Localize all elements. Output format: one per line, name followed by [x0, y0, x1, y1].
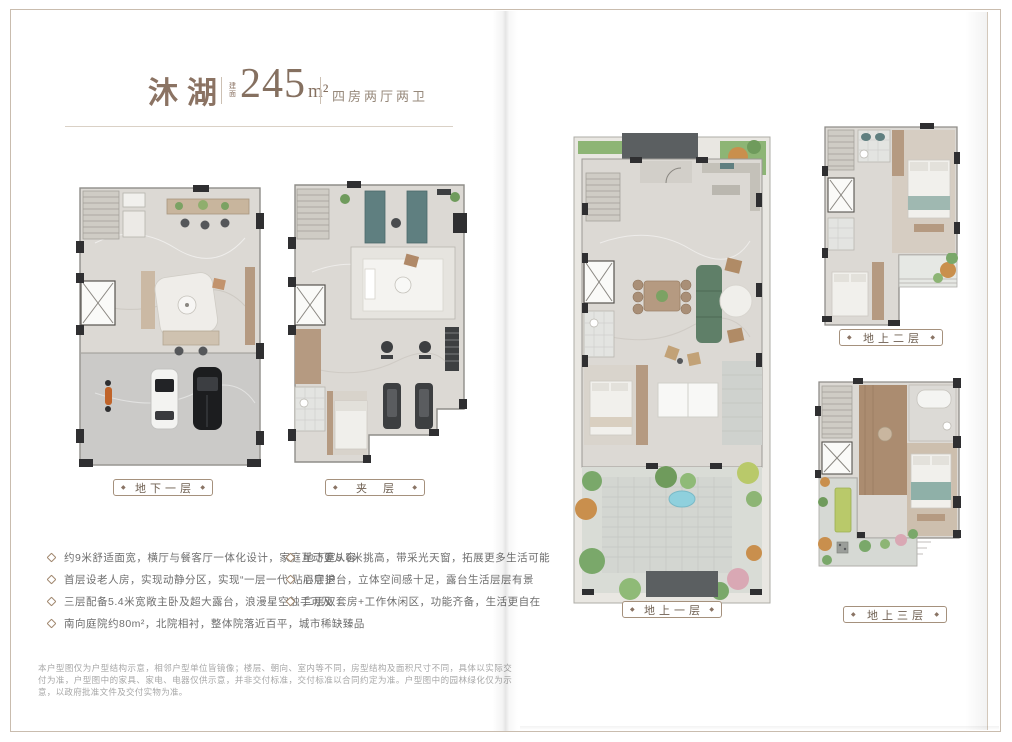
feature-item: 地下室5.6米挑高，带采光天窗，拓展更多生活可能	[287, 552, 497, 564]
title-divider-2	[320, 77, 321, 104]
layout-spec: 四房两厅两卫	[332, 86, 428, 105]
page-edge-line	[987, 12, 988, 730]
feature-item: 首层设老人房，实现动静分区，实现“一层一代”贴心守护	[48, 574, 298, 586]
area-value: 245	[240, 63, 306, 105]
diamond-icon: ◆	[851, 612, 856, 618]
area-figure: 245 m²	[240, 63, 328, 105]
feature-item: 三层配备5.4米宽敞主卧及超大露台，浪漫星空触手可及	[48, 596, 298, 608]
diamond-bullet-icon	[286, 597, 296, 607]
diamond-icon: ◆	[930, 335, 935, 341]
feature-item: 约9米舒适面宽，横厅与餐客厅一体化设计，家庭互动更从容	[48, 552, 298, 564]
floorplan-floor2	[820, 122, 964, 330]
diamond-icon: ◆	[709, 607, 714, 613]
diamond-bullet-icon	[286, 575, 296, 585]
floorplan-mezzanine	[287, 177, 472, 470]
header-rule	[65, 126, 453, 127]
floorplan-floor2-svg	[820, 122, 964, 330]
feature-list-left: 约9米舒适面宽，横厅与餐客厅一体化设计，家庭互动更从容 首层设老人房，实现动静分…	[48, 552, 298, 640]
floorplan-floor3-svg	[813, 376, 965, 604]
diamond-bullet-icon	[47, 553, 57, 563]
plan-label-floor3: ◆ 地上三层 ◆	[843, 606, 947, 623]
diamond-bullet-icon	[286, 553, 296, 563]
brochure-page: { "header": { "title": "沐湖", "area_label…	[0, 0, 1012, 742]
diamond-icon: ◆	[121, 485, 126, 491]
plan-label-floor2: ◆ 地上二层 ◆	[839, 329, 943, 346]
plan-label-mezzanine: ◆ 夹层 ◆	[325, 479, 425, 496]
feature-item: 层层退台，立体空间感十足，露台生活层层有景	[287, 574, 497, 586]
feature-list-right: 地下室5.6米挑高，带采光天窗，拓展更多生活可能 层层退台，立体空间感十足，露台…	[287, 552, 497, 618]
floorplan-mezzanine-svg	[287, 177, 472, 470]
area-unit: m²	[308, 81, 328, 103]
floorplan-floor1	[570, 133, 774, 607]
title-divider-1	[221, 77, 222, 104]
plan-title: 沐湖	[148, 68, 226, 112]
page-gutter-shadow	[492, 11, 518, 731]
page-edge-shade	[965, 12, 987, 730]
disclaimer-text: 本户型图仅为户型结构示意，相邻户型单位皆镜像；楼层、朝向、室内等不同，房型结构及…	[38, 662, 512, 698]
plan-label-floor1: ◆ 地上一层 ◆	[622, 601, 722, 618]
page-bottom-curl	[520, 726, 999, 730]
feature-item: 二层双套房+工作休闲区，功能齐备，生活更自在	[287, 596, 497, 608]
diamond-bullet-icon	[47, 575, 57, 585]
feature-item: 南向庭院约80m²，北院相衬，整体院落近百平，城市稀缺臻品	[48, 618, 298, 630]
floorplan-basement	[75, 183, 265, 470]
area-label: 建面	[229, 83, 238, 99]
diamond-icon: ◆	[333, 485, 338, 491]
diamond-bullet-icon	[47, 597, 57, 607]
diamond-bullet-icon	[47, 619, 57, 629]
floorplan-floor1-svg	[570, 133, 774, 607]
diamond-icon: ◆	[412, 485, 417, 491]
floorplan-basement-svg	[75, 183, 265, 470]
floorplan-floor3	[813, 376, 965, 604]
diamond-icon: ◆	[200, 485, 205, 491]
plan-label-basement: ◆ 地下一层 ◆	[113, 479, 213, 496]
diamond-icon: ◆	[847, 335, 852, 341]
diamond-icon: ◆	[630, 607, 635, 613]
diamond-icon: ◆	[934, 612, 939, 618]
